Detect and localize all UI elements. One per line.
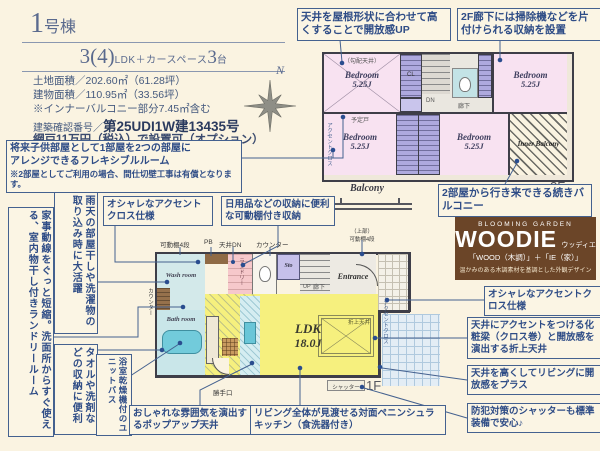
kitchen-island-counter [206,316,219,364]
floor-mat [222,338,238,356]
plan-ldk: LDK＋カースペース [115,55,208,66]
building-title: 1号棟 [30,8,76,40]
stairs-dn-label: DN [426,98,435,104]
balcony-label: Balcony [350,183,384,195]
balcony-rail-2 [330,208,412,210]
brand-logo-woodie: BLOOMING GARDEN WOODIE ウッディエ 「WOOD（木調）」＋… [455,217,596,280]
callout-popup-ceiling: おしゃれな雰囲気を演出するポップアップ天井 [129,405,251,435]
note-flexible-room: 将来子供部屋として1部屋を2つの部屋に アレンジできるフレキシブルルーム ※2部… [6,140,242,193]
closet-2f-center [396,114,440,175]
bedroom2-size: 5.25J [494,80,567,90]
brand-logo-line: WOODIE ウッディエ [455,228,596,251]
shutter-chip: シャッター [327,380,365,391]
floorplan-2f: （勾配天井） Bedroom 5.25J CL DN 廊下 Bedroom 5.… [322,52,574,182]
building-suffix: 号棟 [44,19,76,36]
ldk-size: 18.0J [273,337,343,351]
inner-balcony-label: Inner Balcony [510,140,567,148]
room-bedroom-2f-3: 予定戸 アクセントクロス Bedroom 5.25J [324,114,396,175]
callout-high-ceiling: 天井を高くしてリビングに開放感をプラス [467,365,600,395]
callout-twin-balcony: 2部屋から行き来できる続きバルコニー [438,184,592,217]
callout-accent-cross-1f: オシャレなアクセントクロス仕様 [103,196,213,226]
shelf-label: 可動棚4段 [160,239,190,249]
room-bedroom-2f-4: Bedroom 5.25J [440,114,510,175]
spec-building-area: 建物面積／110.95㎡（33.56坪） [33,89,185,103]
laundry-label: ランドリー [237,258,245,286]
stairs-up-label: UP [303,284,311,290]
kitchen-cabinet-top [205,254,228,264]
entrance-shelf-line1: （上部） [338,227,386,235]
wash-room-label: Wash room [157,272,205,279]
balcony-tick-2 [398,198,400,204]
bedroom3-size: 5.25J [324,142,396,152]
bedroom1-size: 5.25J [324,80,400,90]
compass-icon: N [230,60,302,136]
counter-side-label: カウンター [146,288,154,316]
bedroom4-label: Bedroom 5.25J [440,132,508,152]
room-laundry: ランドリー [228,254,252,294]
storage-sto: Sto [277,254,300,280]
bedroom1-label: Bedroom 5.25J [324,70,400,90]
closet-2f-small [400,98,422,112]
shutter-label: シャッター [332,385,360,391]
accent-wall-1f-label: アクセントクロス [381,300,389,344]
flex-note-line3: ※2部屋としてご利用の場合、間仕切壁工事は有償となります。 [10,169,238,191]
callout-shutter-security: 防犯対策のシャッターも標準装備で安心♪ [467,403,600,433]
oriage-label: 折上天井 [348,318,370,326]
floor-label-1f: 1F [366,378,381,393]
ceiling-dn-label: 天井DN [219,239,241,249]
toilet-icon-1f [259,266,271,282]
partition-label: 予定戸 [324,115,396,124]
plan-car-unit: 台 [217,55,228,66]
toilet-room-2f [452,68,478,98]
closet-2f-right [478,54,492,98]
ldk-name: LDK [273,322,343,337]
flex-note-line1: 将来子供部屋として1部屋を2つの部屋に [10,143,238,156]
balcony-rail-1 [330,203,412,205]
toilet-icon [459,77,471,92]
callout-hall-storage: 2F廊下には掃除機などを片付けられる収納を設置 [457,8,600,41]
closet-2f-left: CL [400,54,422,98]
callout-movable-shelf: 日用品などの収納に便利な可動棚付き収納 [221,196,335,226]
hall-2f: DN 廊下 [422,54,492,112]
room-ldk: 折上天井 LDK 18.0J [205,294,378,375]
note-laundry-room: 家事動線をぐっと短縮。洗面所からすぐ使える、室内物干し付きランドリールーム [8,207,54,437]
toilet-room-1f [252,254,277,294]
ldk-label: LDK 18.0J [273,322,343,351]
closet-label-1: CL [407,72,415,78]
flex-note-line2: アレンジできるフレキシブルルーム [10,156,238,169]
balcony-tick-1 [340,198,342,204]
callout-beam-ceiling: 天井にアクセントをつける化粧梁（クロス巻）と開放感を演出する折上天井 [467,317,600,359]
entrance-shelf-line2: 可動棚4段 [338,235,386,243]
sloped-ceiling-label: （勾配天井） [324,56,400,65]
bathtub-icon [162,330,202,354]
plan-car-count: 3 [207,47,217,68]
room-bedroom-2f-2: Bedroom 5.25J [494,54,567,112]
bath-room-label: Bath room [157,316,205,323]
bedroom4-size: 5.25J [440,142,508,152]
callout-peninsula-kitchen: リビング全体が見渡せる対面ペニンシュラキッチン（食洗器付き） [250,405,446,435]
sto-label: Sto [278,263,299,270]
room-bedroom-2f-1: （勾配天井） Bedroom 5.25J [324,54,400,112]
building-number: 1 [30,8,44,39]
spec-land-area: 土地面積／202.60㎡（61.28坪） [33,75,186,89]
note-bath-dryer: 浴室乾燥機付のユニットバス [96,354,132,436]
logo-formula: 「WOOD（木調）」＋「IE（家）」 [455,252,596,263]
callout-accent-cross-living: オシャレなアクセントクロス仕様 [484,286,600,316]
bedroom3-label: Bedroom 5.25J [324,132,396,152]
backdoor-label: 勝手口 [213,387,233,397]
room-bath: Bath room [157,310,205,375]
note-rainy-day: 雨天の部屋干しや洗濯物の取り込み時に大活躍 [54,192,98,334]
counter-top-label: カウンター [256,239,289,249]
popup-ceiling-panel [244,322,256,344]
closet-center-divider [418,115,419,174]
pb-label: PB [204,239,213,246]
floorplan-1f: Wash room Bath room ランドリー Sto UP 廊下 Entr… [155,252,413,400]
plan-rooms: 3(4) [80,44,115,68]
inner-balcony: Inner Balcony [510,114,567,175]
wall-1f-bottom [155,375,381,378]
header-divider-1 [22,42,285,43]
compass-north-label: N [275,63,285,77]
flyer-page: 1号棟 3(4)LDK＋カースペース3台 土地面積／202.60㎡（61.28坪… [0,0,600,451]
logo-text: WOODIE [455,226,557,252]
stairs-2f [422,54,450,94]
hall-2f-label: 廊下 [458,101,470,110]
hall-1f-label: 廊下 [313,282,325,291]
note-towel-storage: タオルや洗剤などの収納に便利 [54,344,98,435]
bedroom2-label: Bedroom 5.25J [494,70,567,90]
logo-tagline: 温かみのある木調素材を基調とした外観デザイン [455,265,596,274]
wall-1f-porch-right [408,252,411,312]
logo-kana: ウッディエ [561,242,596,249]
entrance-shelf-label: （上部） 可動棚4段 [338,227,386,243]
callout-roof-ceiling: 天井を屋根形状に合わせて高くすることで開放感UP [297,8,451,41]
